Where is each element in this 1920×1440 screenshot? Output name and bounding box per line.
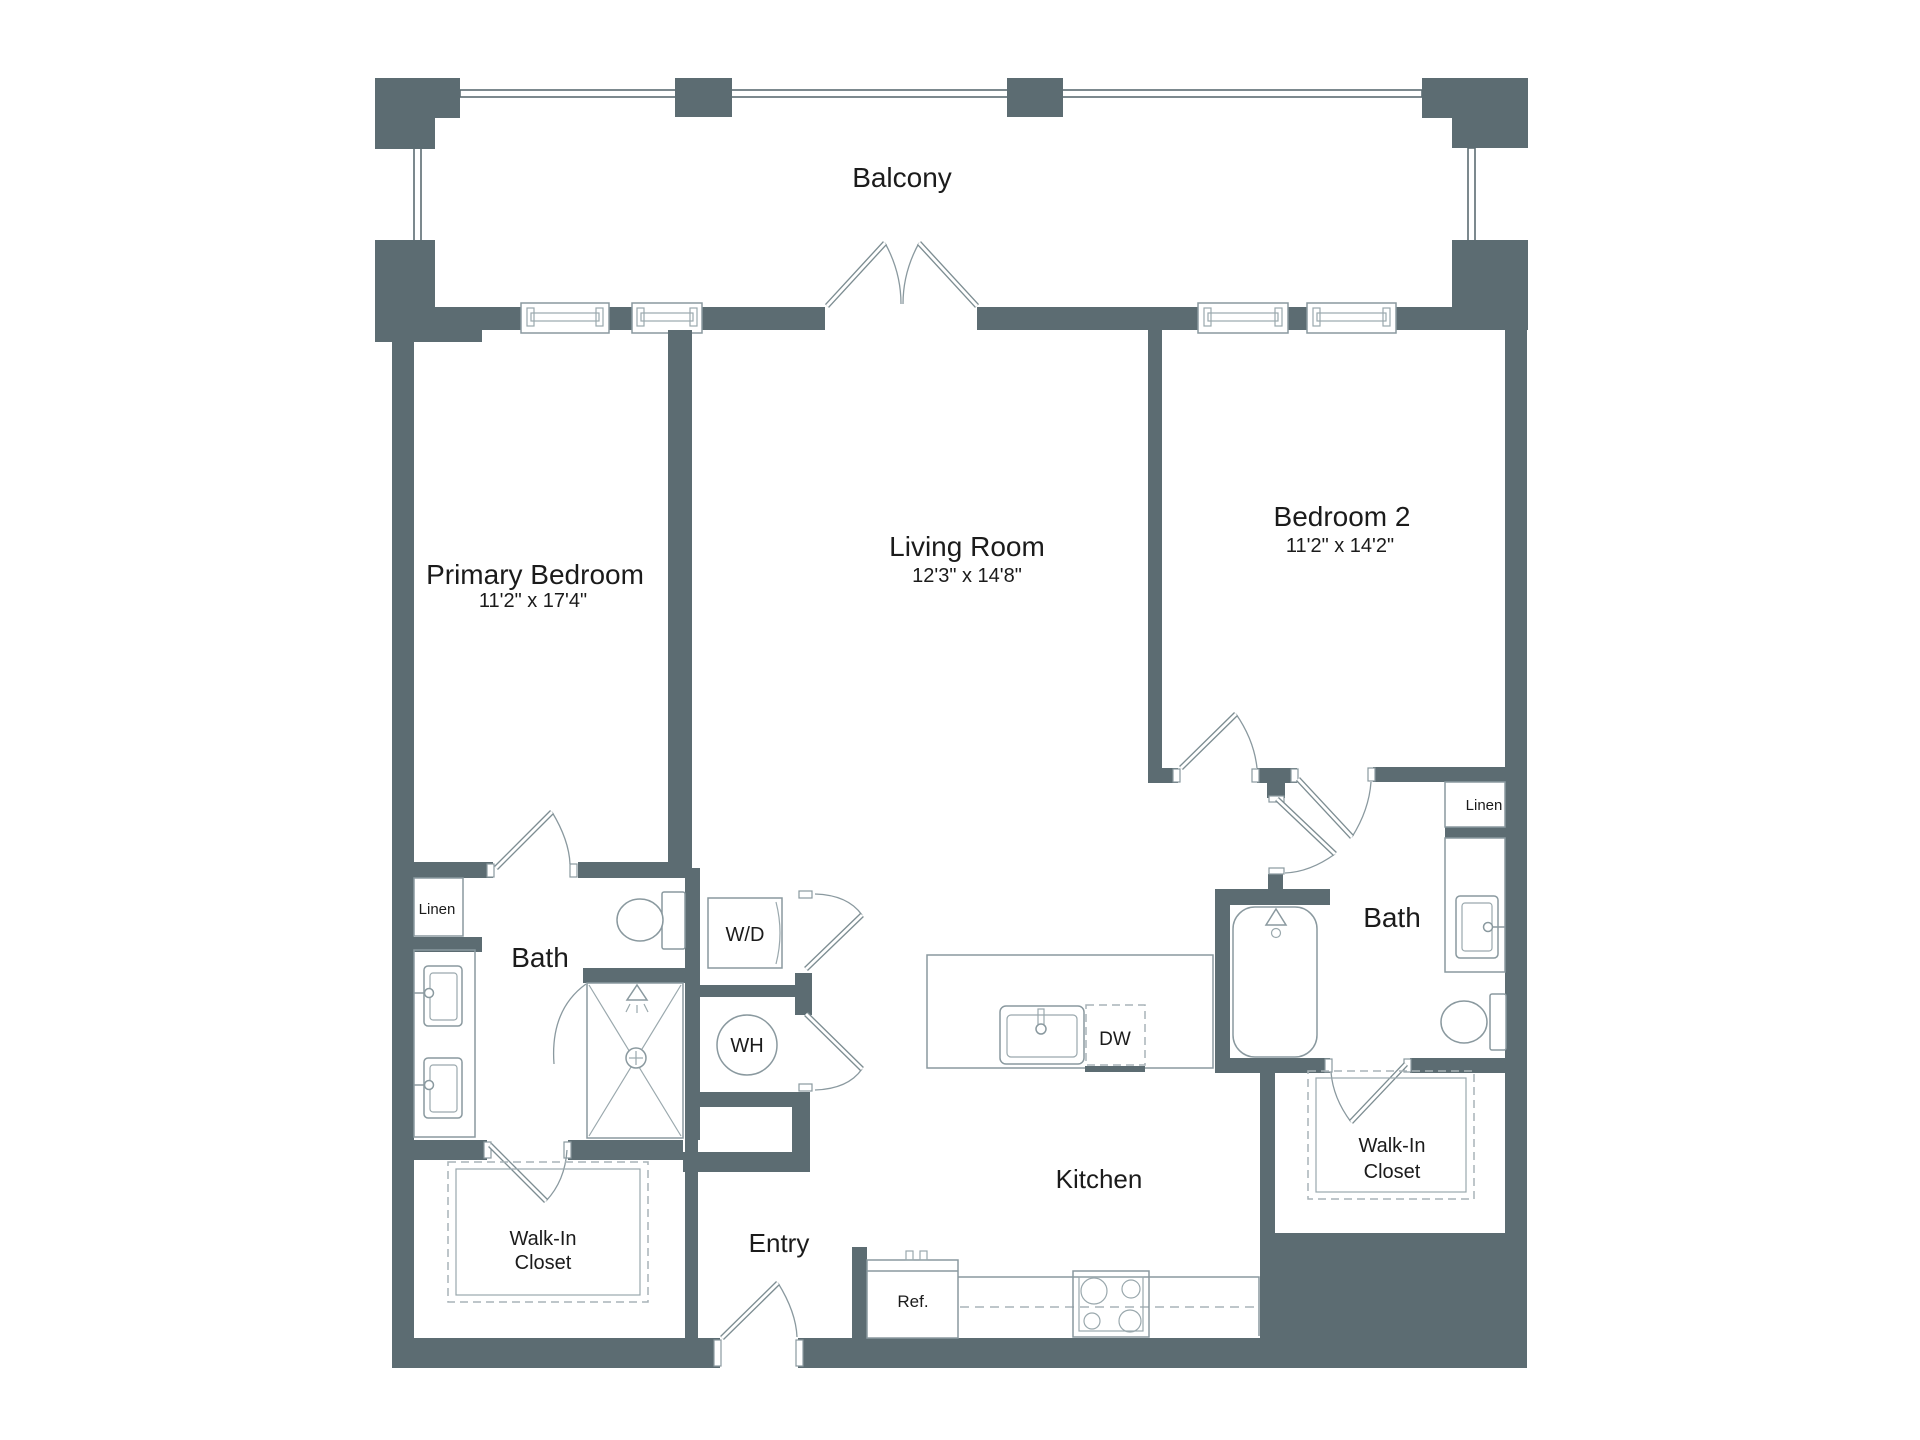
bathtub xyxy=(1233,907,1317,1057)
primary-bedroom-label: Primary Bedroom xyxy=(426,559,644,590)
toilet-2 xyxy=(1441,994,1506,1050)
toilet-1 xyxy=(617,892,685,949)
primary-bedroom-window-2 xyxy=(632,303,702,333)
walk-in-closet-2-door xyxy=(1325,1059,1411,1122)
windows xyxy=(521,303,1396,333)
linen-2-label: Linen xyxy=(1466,797,1503,814)
washer-dryer-closet-door xyxy=(799,891,862,969)
room-living-room-area xyxy=(692,330,1148,950)
entry-door xyxy=(714,1283,803,1366)
water-heater-closet-door xyxy=(799,1014,862,1091)
shower-1 xyxy=(554,983,683,1138)
vanity-1 xyxy=(414,950,475,1137)
bedroom-2-window-2 xyxy=(1307,303,1396,333)
stove xyxy=(1073,1271,1149,1337)
primary-bedroom-dims: 11'2" x 17'4" xyxy=(479,590,587,612)
water-heater-label: WH xyxy=(730,1035,763,1057)
refrigerator-label: Ref. xyxy=(897,1292,928,1311)
tub-shower-head-icon xyxy=(1266,909,1286,925)
washer-dryer-label: W/D xyxy=(726,924,765,946)
walk-in-closet-2-label-line1: Walk-In xyxy=(1358,1135,1425,1157)
bedroom-2-dims: 11'2" x 14'2" xyxy=(1286,535,1394,557)
bedroom-2-window-1 xyxy=(1198,303,1288,333)
primary-bath-door xyxy=(487,812,577,877)
living-room-dims: 12'3" x 14'8" xyxy=(912,565,1022,587)
room-kitchen-area xyxy=(860,955,1260,1338)
entry-label: Entry xyxy=(749,1228,810,1258)
bath-2-label: Bath xyxy=(1363,902,1421,933)
walk-in-closet-2-label-line2: Closet xyxy=(1364,1161,1421,1183)
exterior-walls xyxy=(392,307,1527,1368)
shower-head-icon xyxy=(627,985,647,1000)
walk-in-closet-1-label-line2: Closet xyxy=(515,1252,572,1274)
primary-bath-label: Bath xyxy=(511,942,569,973)
primary-bedroom-window-1 xyxy=(521,303,609,333)
kitchen-counter xyxy=(958,1277,1259,1336)
kitchen-island xyxy=(927,955,1213,1068)
bedroom-2-label: Bedroom 2 xyxy=(1274,501,1411,532)
living-room-label: Living Room xyxy=(889,531,1045,562)
balcony-label: Balcony xyxy=(852,162,952,193)
walk-in-closet-1-door xyxy=(484,1142,571,1201)
linen-1-label: Linen xyxy=(419,901,456,918)
walk-in-closet-1-label-line1: Walk-In xyxy=(509,1228,576,1250)
dishwasher-label: DW xyxy=(1099,1029,1131,1050)
floor-plan-drawing: Balcony Primary Bedroom 11'2" x 17'4" Li… xyxy=(0,0,1920,1440)
balcony-door xyxy=(827,243,977,306)
kitchen-label: Kitchen xyxy=(1056,1164,1143,1194)
bedroom-2-door xyxy=(1173,714,1259,782)
vanity-2 xyxy=(1445,838,1505,972)
floor-plan: Balcony Primary Bedroom 11'2" x 17'4" Li… xyxy=(0,0,1920,1440)
